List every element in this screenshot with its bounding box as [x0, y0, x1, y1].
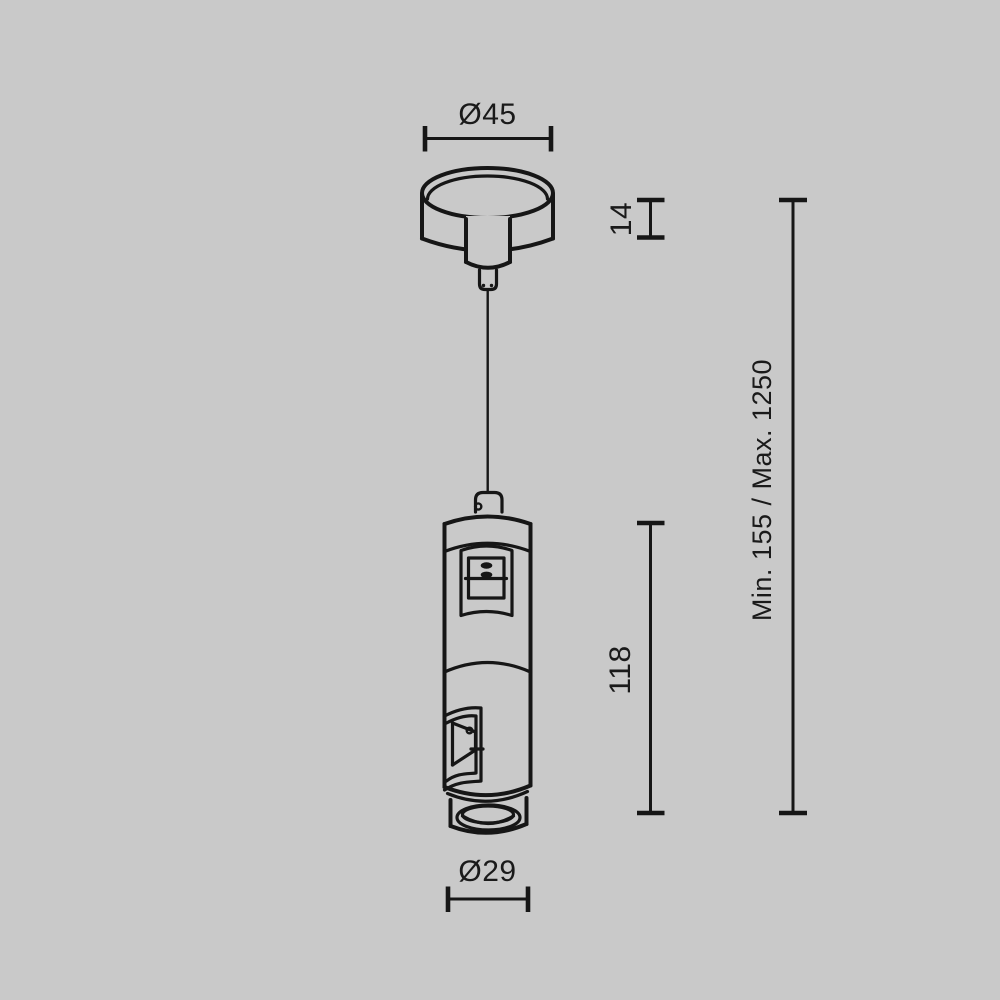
connector-panel — [461, 546, 512, 616]
nipple-detail-dot — [482, 284, 485, 287]
canopy-height-label: 14 — [605, 202, 638, 236]
body-bottom-arc — [445, 786, 531, 796]
bottom-recess — [457, 805, 520, 830]
body-height-label: 118 — [604, 645, 637, 694]
switch-pin-dot — [481, 572, 493, 578]
strain-relief-nipple — [480, 270, 497, 290]
dim-suspension-range: Min. 155 / Max. 1250 — [747, 200, 807, 813]
side-opening — [445, 708, 484, 790]
lever-bottom-diagonal — [453, 750, 476, 765]
nipple-outline — [480, 270, 497, 290]
canopy-rim-arc — [428, 176, 548, 199]
dim-canopy-diameter: Ø45 — [425, 98, 551, 152]
dim-canopy-height: 14 — [605, 200, 665, 238]
bottom-diameter-label: Ø29 — [458, 855, 516, 888]
dim-body-height: 118 — [604, 523, 665, 813]
body-top-cap — [475, 493, 502, 513]
setscrew-icon — [475, 503, 481, 509]
body-top-arc — [445, 517, 531, 525]
drawing-canvas: Ø45 — [0, 0, 1000, 1000]
canopy-diameter-label: Ø45 — [458, 98, 516, 131]
technical-drawing: Ø45 — [0, 0, 1000, 1000]
cord-grip-body — [466, 216, 510, 268]
cord-grip — [466, 216, 510, 268]
clamp-lever — [453, 723, 484, 765]
recess-depth-arc — [463, 816, 514, 824]
bottom-cap — [445, 786, 531, 833]
switch-pin-dot — [481, 562, 493, 568]
suspension-range-label: Min. 155 / Max. 1250 — [747, 359, 777, 621]
nipple-detail-dot — [490, 284, 493, 287]
dim-bottom-diameter: Ø29 — [448, 855, 528, 912]
body-mid-divider-arc — [445, 663, 531, 673]
